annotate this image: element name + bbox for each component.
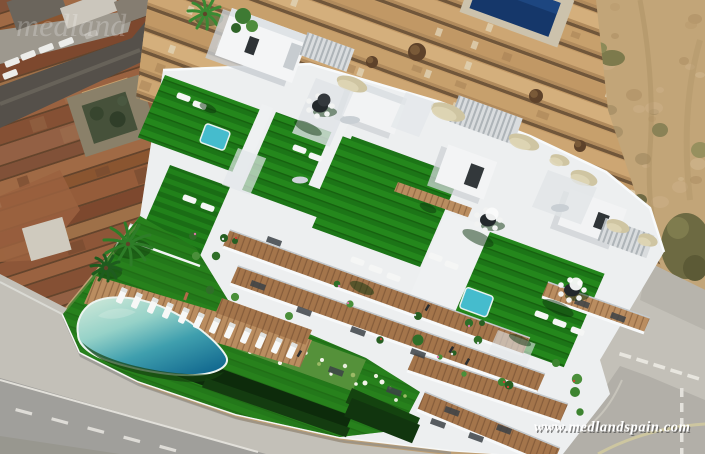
svg-text:medland: medland [16,7,127,43]
svg-text:www.medlandspain.com: www.medlandspain.com [534,420,690,436]
